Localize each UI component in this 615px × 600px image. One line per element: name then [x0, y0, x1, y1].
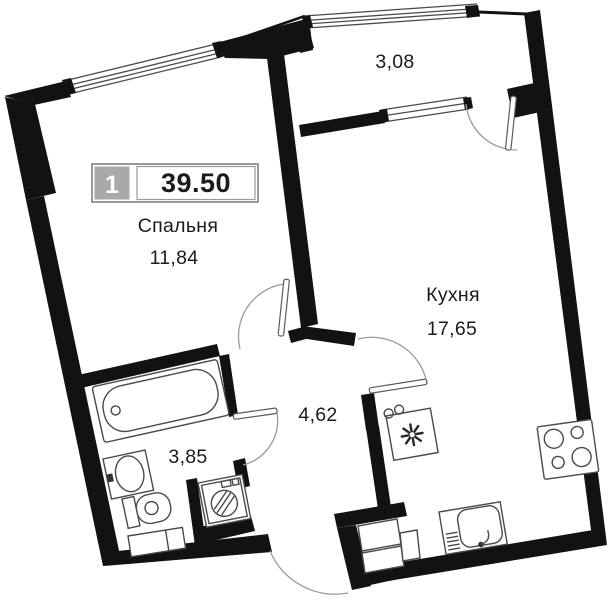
apartment-number: 1 [105, 171, 119, 199]
balcony-area: 3,08 [375, 51, 414, 73]
bedroom-door [238, 279, 289, 349]
kitchen-door [358, 337, 427, 393]
walls [4, 10, 607, 590]
bedroom-area: 11,84 [150, 247, 199, 269]
washing-machine-icon [198, 474, 251, 527]
apartment-label: 1 39.50 [92, 164, 258, 202]
kitchen-balcony-window [379, 97, 473, 123]
fridge-icon [383, 400, 438, 461]
hallway-area: 4,62 [298, 404, 337, 426]
bedroom-name: Спальня [138, 215, 218, 237]
kitchen-area: 17,65 [427, 318, 477, 340]
floor-plan-drawing: 1 39.50 Спальня 11,84 Кухня 17,65 4,62 3… [0, 0, 615, 600]
bathroom-door [233, 408, 278, 465]
balcony-glazing [302, 4, 480, 29]
washbasin-icon [103, 450, 154, 499]
balcony-door [466, 96, 517, 150]
kitchen-name: Кухня [426, 284, 480, 306]
kitchen-sink-icon [439, 502, 507, 555]
total-area: 39.50 [161, 168, 231, 198]
bedroom-window [62, 41, 226, 95]
bathroom-area: 3,85 [168, 446, 207, 468]
floor-plan: 1 39.50 Спальня 11,84 Кухня 17,65 4,62 3… [0, 0, 615, 600]
stove-icon [537, 419, 599, 479]
entrance-door [270, 551, 348, 594]
